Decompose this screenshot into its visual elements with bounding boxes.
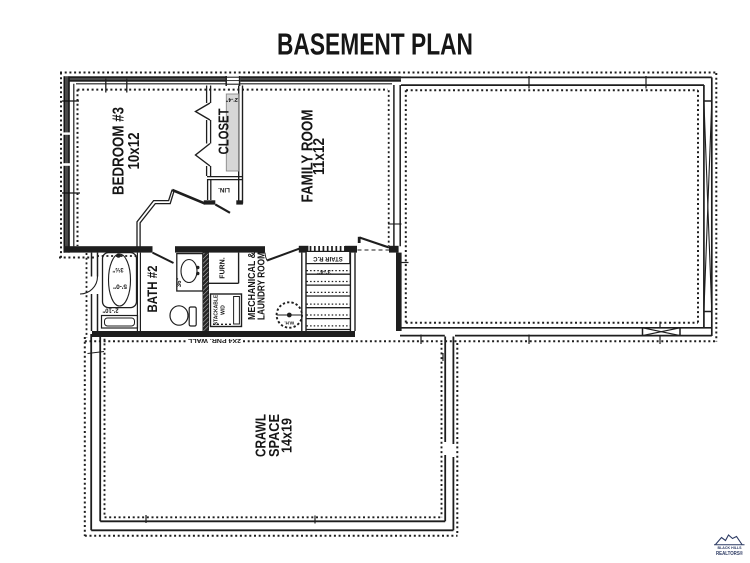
svg-text:STACKABLE: STACKABLE	[214, 294, 220, 325]
svg-text:2'-10": 2'-10"	[102, 307, 118, 313]
svg-text:W.H.: W.H.	[284, 321, 294, 326]
svg-text:FURN.: FURN.	[220, 257, 227, 278]
svg-text:2'-4": 2'-4"	[225, 96, 237, 102]
svg-text:14x19: 14x19	[280, 418, 296, 453]
svg-text:CLOSET: CLOSET	[216, 109, 233, 155]
svg-text:W/D: W/D	[221, 305, 227, 315]
svg-text:2X4 PNR. WALL: 2X4 PNR. WALL	[187, 337, 241, 343]
svg-text:LIN.: LIN.	[218, 186, 230, 193]
svg-text:REALTORS®: REALTORS®	[716, 550, 743, 557]
svg-text:STAIR R.C: STAIR R.C	[313, 255, 343, 261]
svg-text:10x12: 10x12	[126, 133, 143, 170]
svg-text:BATH #2: BATH #2	[145, 266, 160, 313]
svg-text:BLACK HILLS: BLACK HILLS	[718, 546, 743, 550]
svg-text:11x12: 11x12	[311, 138, 328, 175]
svg-text:LAUNDRY ROOM: LAUNDRY ROOM	[257, 252, 268, 320]
svg-text:5'-0": 5'-0"	[113, 283, 127, 290]
svg-text:36": 36"	[177, 278, 183, 288]
svg-text:BASEMENT PLAN: BASEMENT PLAN	[277, 28, 473, 62]
svg-text:3½": 3½"	[112, 266, 123, 273]
svg-text:BEDROOM #3: BEDROOM #3	[111, 107, 128, 195]
